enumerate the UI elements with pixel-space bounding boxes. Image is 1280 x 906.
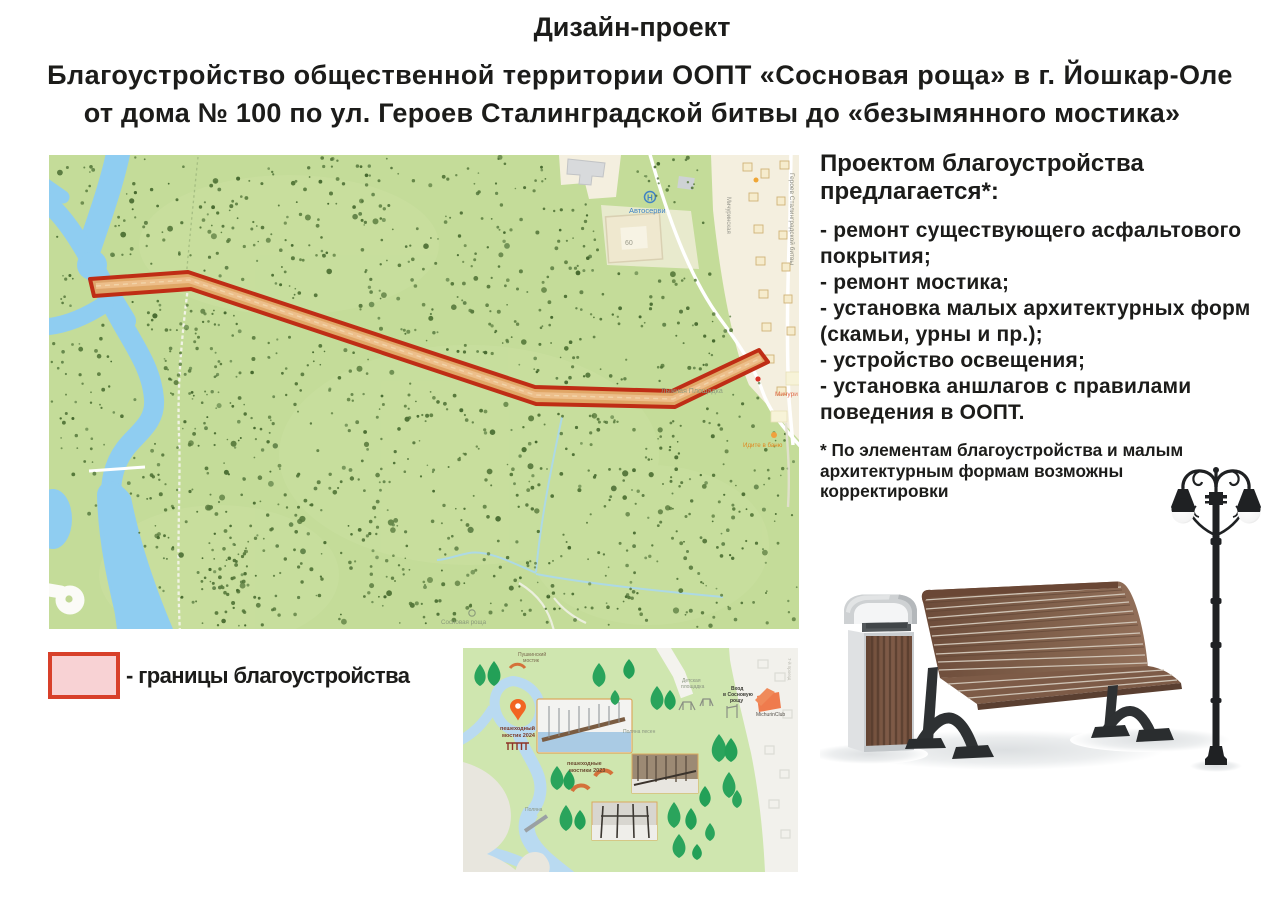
- svg-text:рощу: рощу: [730, 698, 743, 704]
- svg-text:площадка: площадка: [681, 684, 705, 690]
- svg-text:MichurinClub: MichurinClub: [756, 712, 785, 718]
- svg-text:Мичури: Мичури: [775, 391, 798, 398]
- svg-text:7-й проезд: 7-й проезд: [787, 658, 793, 681]
- svg-text:Пушкинский: Пушкинский: [518, 651, 546, 658]
- svg-text:Сосновая роща: Сосновая роща: [441, 619, 487, 626]
- svg-text:пешеходные: пешеходные: [567, 761, 602, 767]
- svg-text:Лыжная Площадка: Лыжная Площадка: [661, 388, 723, 395]
- svg-text:пешеходный: пешеходный: [500, 725, 535, 732]
- svg-text:Идите в баню: Идите в баню: [743, 442, 783, 449]
- svg-text:Героев Сталинградской битвы: Героев Сталинградской битвы: [788, 173, 796, 265]
- svg-text:мостик 2024: мостик 2024: [502, 733, 536, 739]
- svg-text:мостики 2023: мостики 2023: [569, 768, 605, 774]
- svg-text:Поляна песен: Поляна песен: [623, 729, 656, 735]
- svg-text:Мичуринская: Мичуринская: [725, 197, 731, 234]
- svg-text:Автосервис: Автосервис: [629, 206, 670, 215]
- svg-text:H: H: [647, 194, 653, 203]
- svg-text:мостик: мостик: [523, 658, 540, 664]
- svg-text:Поляна: Поляна: [525, 807, 543, 813]
- svg-text:60: 60: [625, 240, 633, 247]
